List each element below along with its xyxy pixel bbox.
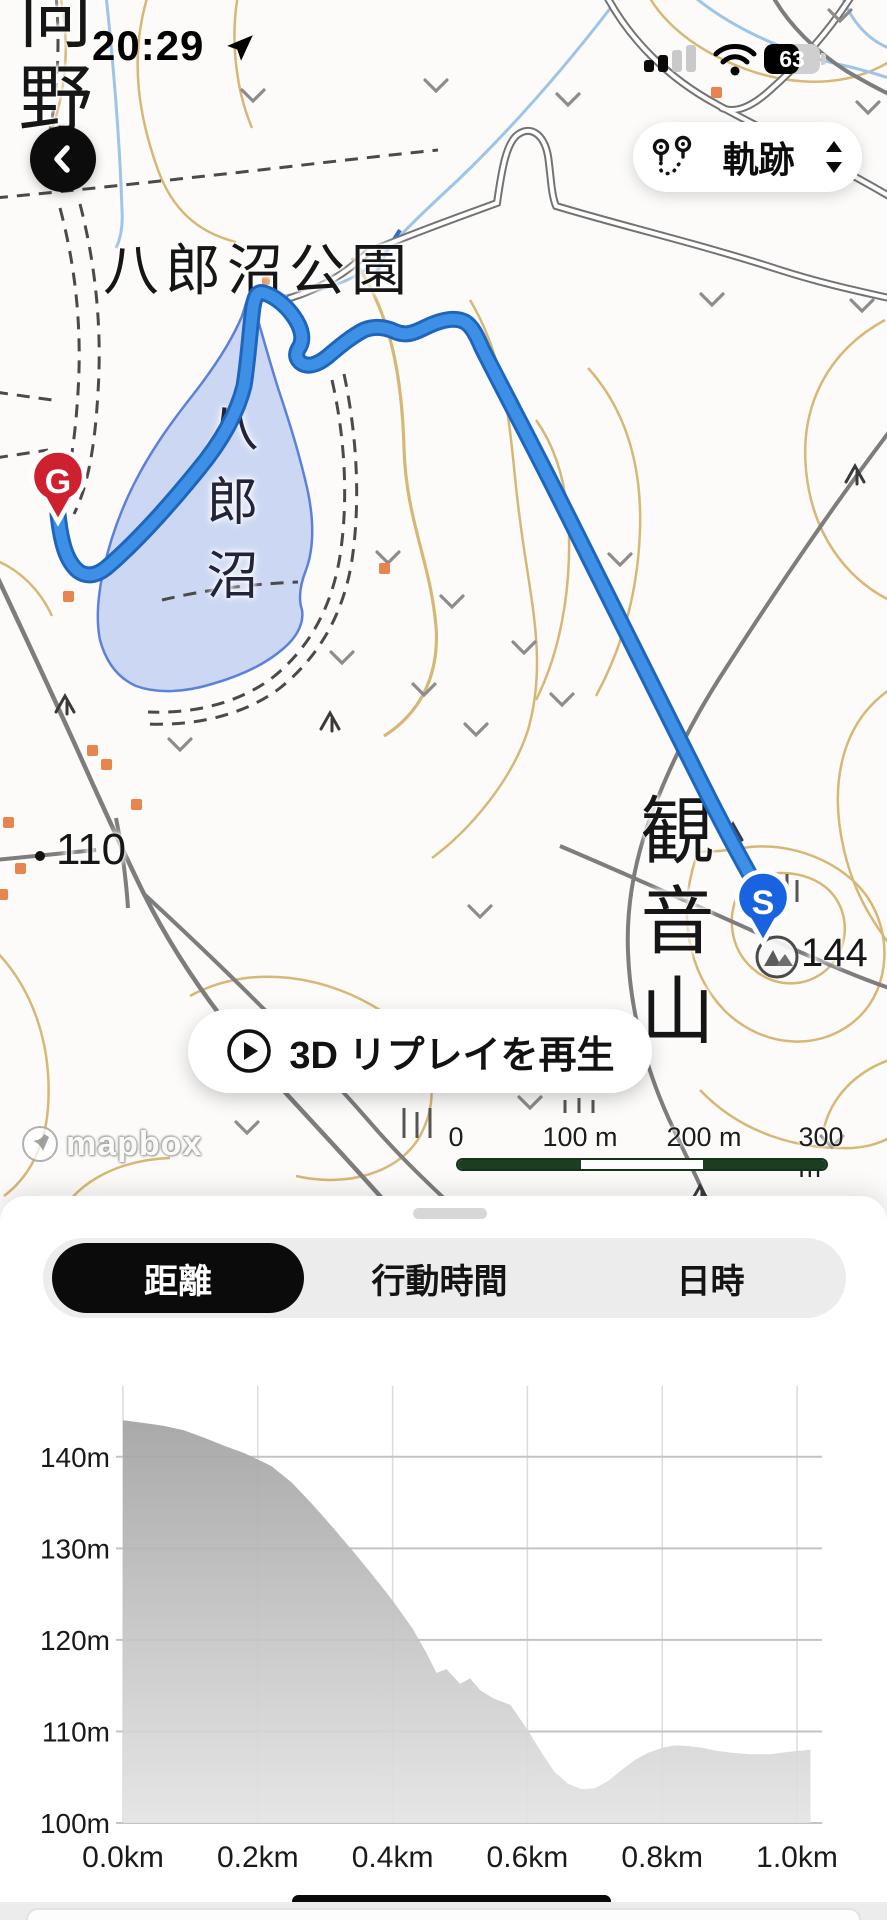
map-label-lake: 八郎沼 — [190, 400, 265, 622]
mapbox-wordmark: mapbox — [66, 1125, 202, 1164]
track-selector-button[interactable]: 軌跡 — [633, 122, 862, 192]
x-axis-tick-label: 0.2km — [217, 1841, 299, 1874]
tab-active-time[interactable]: 行動時間 — [304, 1243, 575, 1313]
updown-arrows-icon — [824, 139, 844, 175]
y-axis-tick-label: 130m — [40, 1533, 110, 1564]
tab-datetime-label: 日時 — [677, 1254, 745, 1303]
mapbox-attribution: mapbox — [20, 1124, 202, 1164]
replay-3d-button[interactable]: 3D リプレイを再生 — [188, 1009, 652, 1093]
battery-icon: 63 — [764, 44, 826, 74]
track-selector-label: 軌跡 — [707, 131, 810, 183]
status-bar: 20:29 63 — [0, 0, 887, 100]
mapbox-logo-icon — [20, 1124, 60, 1164]
spot-height-dot — [35, 851, 45, 861]
scale-tick-0: 0 — [448, 1122, 463, 1153]
x-axis-tick-label: 0.0km — [82, 1841, 164, 1874]
y-axis-tick-label: 140m — [40, 1442, 110, 1473]
tab-distance-label: 距離 — [144, 1254, 212, 1303]
elevation-chart[interactable]: 100m110m120m130m140m0.0km0.2km0.4km0.6km… — [0, 1380, 887, 1892]
tab-active-time-label: 行動時間 — [372, 1254, 508, 1303]
track-route-icon — [649, 134, 695, 180]
scale-tick-100: 100 m — [542, 1122, 617, 1153]
scale-bar — [456, 1158, 828, 1171]
x-axis-tick-label: 0.8km — [621, 1841, 703, 1874]
map-view[interactable]: 向野 八郎沼公園 八郎沼 観音山 110 144 S G — [0, 0, 887, 1214]
clock: 20:29 — [92, 22, 204, 70]
elevation-area — [123, 1420, 811, 1823]
wifi-icon — [712, 42, 758, 78]
y-axis-tick-label: 110m — [42, 1716, 110, 1747]
map-label-height-110: 110 — [56, 825, 126, 875]
map-label-height-144: 144 — [801, 931, 868, 976]
chevron-left-icon — [51, 144, 75, 174]
replay-3d-label: 3D リプレイを再生 — [289, 1024, 614, 1079]
play-icon — [225, 1027, 273, 1075]
map-label-park: 八郎沼公園 — [103, 226, 413, 307]
scale-tick-200: 200 m — [666, 1122, 741, 1153]
app-screen: 向野 八郎沼公園 八郎沼 観音山 110 144 S G — [0, 0, 887, 1920]
x-axis-mode-tabs: 距離 行動時間 日時 — [43, 1238, 846, 1318]
next-card-edge — [26, 1908, 861, 1920]
drag-handle[interactable] — [413, 1208, 487, 1219]
back-button[interactable] — [30, 126, 96, 192]
y-axis-tick-label: 100m — [40, 1808, 110, 1839]
tab-distance[interactable]: 距離 — [52, 1243, 304, 1313]
y-axis-tick-label: 120m — [40, 1625, 110, 1656]
cellular-signal-icon — [644, 42, 706, 72]
x-axis-tick-label: 0.6km — [487, 1841, 569, 1874]
scale-tick-300: 300 m — [799, 1122, 858, 1184]
x-axis-tick-label: 1.0km — [756, 1841, 838, 1874]
battery-percent: 63 — [764, 44, 820, 74]
bottom-sheet: 距離 行動時間 日時 100m110m120m130m140m0.0km0.2k… — [0, 1196, 887, 1920]
location-arrow-icon — [224, 32, 256, 64]
x-axis-tick-label: 0.4km — [352, 1841, 434, 1874]
tab-datetime[interactable]: 日時 — [575, 1243, 846, 1313]
